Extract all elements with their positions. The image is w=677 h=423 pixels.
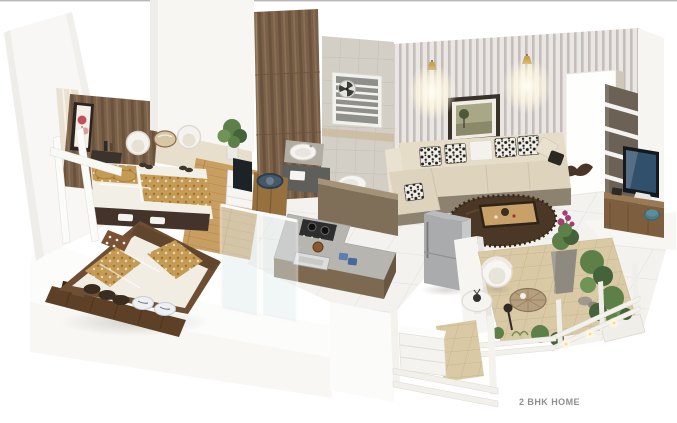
serving-tray-table <box>480 202 538 227</box>
balcony-rustic-table <box>510 289 546 312</box>
round-table <box>154 131 176 147</box>
armchair-left <box>127 132 150 155</box>
balcony-tub-chair <box>481 257 513 294</box>
bathroom-window <box>332 72 382 128</box>
glass-partition <box>221 205 297 323</box>
tv <box>623 146 659 200</box>
armchair-right <box>178 126 201 149</box>
fruit-bowl <box>313 242 323 252</box>
washbasin <box>284 140 324 166</box>
bedroom-tv <box>233 158 252 192</box>
floorplan-scene <box>0 0 677 423</box>
exhaust-fan-icon <box>339 81 356 98</box>
storage-box <box>399 325 446 376</box>
teal-side-stool <box>645 209 660 220</box>
image-top-border <box>0 0 677 1</box>
floorplan-3d-render: 2 BHK HOME <box>0 0 677 423</box>
caption-2bhk-home: 2 BHK HOME <box>519 397 580 407</box>
framed-landscape-picture <box>448 94 500 144</box>
round-top-cabinet <box>252 172 288 216</box>
